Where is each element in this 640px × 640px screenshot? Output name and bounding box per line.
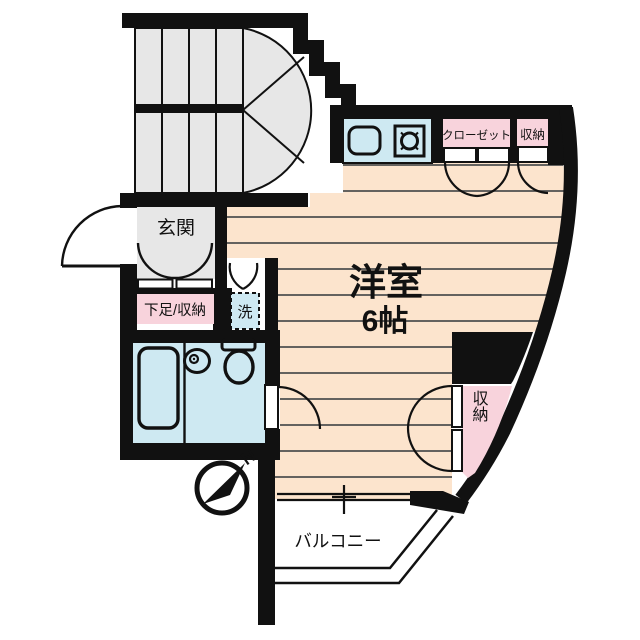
washer-label: 洗 — [237, 304, 252, 321]
floor-plan: 玄関 下足/収納 洗 — [0, 0, 640, 640]
closet-label: クローゼット — [442, 129, 511, 142]
shoe-storage-label: 下足/収納 — [144, 302, 206, 319]
entrance-left-wall-top — [120, 193, 137, 208]
storage-top-door-slab — [518, 147, 548, 162]
entrance-right-wall — [215, 193, 227, 293]
kitchen — [343, 118, 432, 163]
stair-top-wall — [122, 13, 292, 28]
room-name-label: 洋室 — [349, 261, 423, 303]
entrance-label: 玄関 — [157, 217, 195, 239]
stair-landing-divider — [135, 104, 243, 113]
bathroom-right-wall-upper — [265, 330, 280, 387]
closet-door-slab — [177, 280, 213, 289]
closet-door-slab — [478, 148, 509, 162]
balcony-left-wall — [258, 450, 275, 625]
closet-door-slab — [444, 148, 476, 162]
closet-door-slab — [138, 280, 173, 289]
room-size-label: 6帖 — [362, 305, 409, 338]
staircase — [135, 28, 311, 193]
storage-top-label: 収納 — [520, 128, 545, 142]
balcony-label: バルコニー — [294, 531, 381, 551]
bathroom-left-wall — [120, 330, 133, 460]
kitchen-left-wall — [330, 105, 343, 163]
storage-right-label: 収納 — [470, 390, 489, 423]
storage-right-door-slab — [452, 386, 462, 427]
closet-divider-wall — [510, 105, 518, 163]
storage-right-door-slab — [452, 430, 462, 471]
shoe-storage: 下足/収納 — [137, 294, 214, 324]
bathroom-door-leaf — [265, 385, 278, 429]
floor-plan-canvas: 玄関 下足/収納 洗 — [0, 0, 640, 640]
north-wall — [330, 105, 572, 119]
